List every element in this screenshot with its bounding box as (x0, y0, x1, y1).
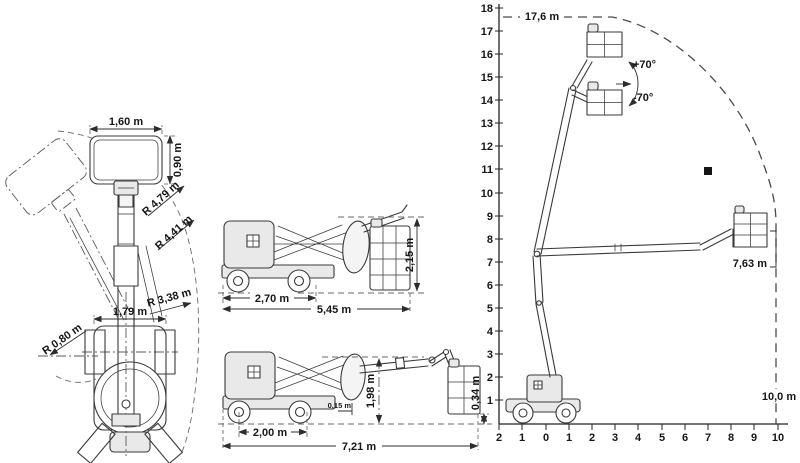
envelope-chart: 18 17 16 15 14 13 12 11 10 9 8 7 6 5 4 3… (481, 3, 800, 444)
dim-overall-height-label: 2,15 m (404, 238, 416, 272)
svg-text:9: 9 (487, 211, 493, 223)
svg-text:17: 17 (481, 26, 493, 38)
telescopic-boom (360, 359, 428, 373)
svg-text:3: 3 (487, 349, 493, 361)
jib-up-angle-label: +70° (633, 59, 656, 71)
svg-text:5: 5 (659, 432, 665, 444)
raised-boom (534, 88, 576, 254)
dim-platform-width-label: 1,60 m (109, 116, 143, 128)
svg-text:15: 15 (481, 72, 493, 84)
basket-height-label: 7,63 m (733, 258, 767, 270)
svg-text:2: 2 (589, 432, 595, 444)
dim-radius-outer-label: R 4,79 m (140, 179, 182, 218)
point-marker (704, 167, 712, 175)
svg-text:5: 5 (487, 303, 493, 315)
ghost-platform (2, 136, 97, 228)
svg-text:1: 1 (566, 432, 572, 444)
svg-text:11: 11 (481, 164, 493, 176)
dim-radius-inner-label: R 0,80 m (40, 322, 84, 358)
dim-working-length-label: 7,21 m (342, 441, 376, 453)
boom-pivot (340, 220, 371, 274)
dim-radius-tail-label: R 3,38 m (146, 286, 193, 309)
dim-overall-length-label: 5,45 m (317, 304, 351, 316)
svg-text:6: 6 (487, 280, 493, 292)
wheel (289, 401, 311, 423)
svg-text:3: 3 (612, 432, 618, 444)
basket-horizontal (734, 206, 767, 247)
basket-height-bracket (770, 231, 776, 267)
side-view-stowed: 2,15 m 2,70 m 5,45 m (218, 205, 428, 316)
svg-text:2: 2 (496, 432, 502, 444)
dim-chassis-width-label: 1,79 m (113, 306, 147, 318)
svg-text:8: 8 (487, 234, 493, 246)
wheel (227, 270, 249, 292)
platform-top (90, 136, 162, 195)
svg-text:2: 2 (487, 372, 493, 384)
svg-text:8: 8 (728, 432, 734, 444)
dim-boom-rest-height-label: 1,98 m (365, 374, 377, 408)
svg-text:1: 1 (487, 395, 493, 407)
chart-machine (506, 24, 776, 423)
dim-working-wheelbase-label: 2,00 m (253, 427, 287, 439)
boom-pivot (339, 353, 368, 401)
svg-text:4: 4 (635, 432, 642, 444)
plan-view: 1,60 m 0,90 m R 4,79 m R 4,41 m R 3,38 m… (2, 116, 198, 463)
max-height-label: 17,6 m (525, 11, 559, 23)
folded-boom (275, 356, 351, 391)
jib-down (572, 90, 588, 102)
x-axis-labels: 2 1 0 1 2 3 4 5 6 7 8 9 10 (496, 432, 784, 444)
dim-basket-floor-height-label: 0,34 m (470, 376, 482, 410)
svg-text:10: 10 (481, 188, 493, 200)
wheel (288, 270, 310, 292)
y-axis-labels: 18 17 16 15 14 13 12 11 10 9 8 7 6 5 4 3… (481, 3, 494, 407)
svg-text:13: 13 (481, 118, 493, 130)
svg-text:10: 10 (772, 432, 784, 444)
svg-text:16: 16 (481, 49, 493, 61)
counterweight (110, 432, 150, 452)
svg-text:1: 1 (519, 432, 525, 444)
folded-boom (274, 225, 350, 260)
outreach-label: 10,0 m (762, 391, 796, 403)
svg-text:6: 6 (682, 432, 688, 444)
x-tick-marks (499, 424, 778, 430)
svg-text:4: 4 (487, 326, 494, 338)
dim-platform-depth-label: 0,90 m (172, 143, 184, 177)
side-view-working: 0,15 m 1,98 m 0,34 m 2,00 m 7,21 m (218, 350, 492, 454)
svg-text:18: 18 (481, 3, 493, 15)
jib-down-angle-label: -70° (633, 92, 653, 104)
svg-text:9: 9 (751, 432, 757, 444)
boom-lift-spec-diagram: 1,60 m 0,90 m R 4,79 m R 4,41 m R 3,38 m… (0, 0, 800, 463)
dim-radius-basket-label: R 4,41 m (153, 213, 195, 252)
basket-up (587, 24, 622, 57)
basket-down (587, 82, 622, 115)
svg-text:0: 0 (543, 432, 549, 444)
svg-text:12: 12 (481, 141, 493, 153)
horizontal-boom (537, 229, 734, 256)
svg-text:7: 7 (487, 257, 493, 269)
dim-wheelbase-label: 2,70 m (255, 293, 289, 305)
svg-text:14: 14 (481, 95, 494, 107)
dim-ground-clearance-label: 0,15 m (328, 401, 352, 410)
svg-text:7: 7 (705, 432, 711, 444)
